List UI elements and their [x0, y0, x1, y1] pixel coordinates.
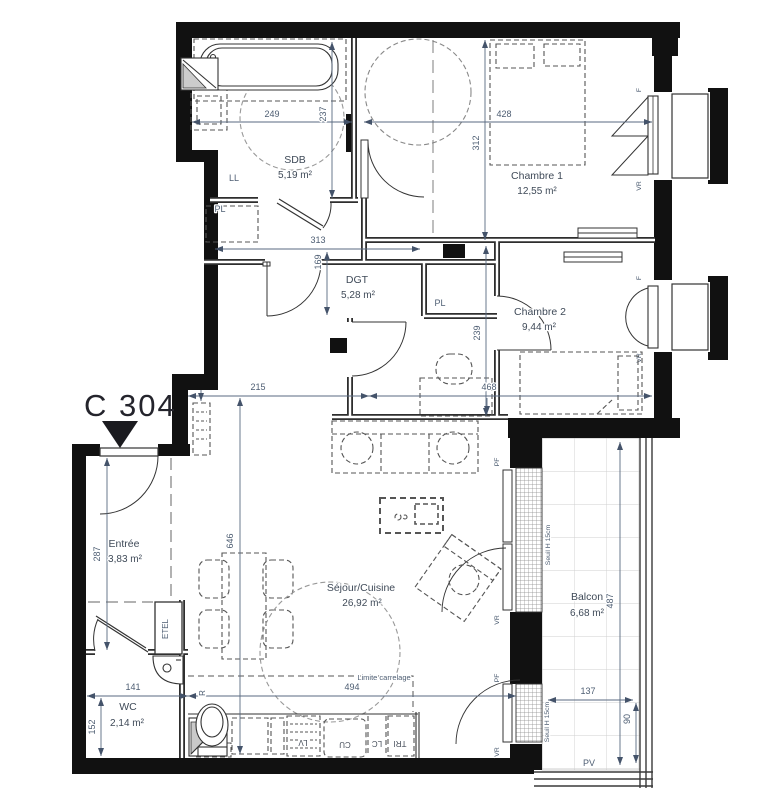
dim-468: 468 [481, 382, 496, 392]
svg-text:9,44 m²: 9,44 m² [522, 322, 557, 333]
room-label-wc: WC 2,14 m² [110, 701, 145, 729]
svg-text:2,14 m²: 2,14 m² [110, 718, 145, 729]
dim-90: 90 [622, 714, 632, 724]
radiator-entree [193, 403, 210, 455]
dim-237: 237 [318, 106, 328, 121]
balcony-label-vr: VR [494, 747, 501, 757]
svg-text:Chambre 1: Chambre 1 [511, 170, 563, 182]
sorting-bin [388, 716, 414, 756]
svg-text:5,19 m²: 5,19 m² [278, 170, 313, 181]
entrance-door-swing [100, 456, 158, 514]
label-r: R [198, 690, 207, 696]
sofa [332, 421, 478, 473]
sejour-door-swing [352, 322, 406, 376]
svg-text:Balcon: Balcon [571, 591, 603, 603]
dim-428: 428 [496, 109, 511, 119]
pillow [544, 44, 580, 66]
svg-text:Chambre 2: Chambre 2 [514, 306, 566, 318]
floor-plan-page: F VR F VR PF VR PF VR Seuil H 15cm Seuil… [0, 0, 768, 800]
svg-text:26,92 m²: 26,92 m² [342, 598, 382, 609]
entrance-door-leaf [100, 448, 158, 456]
window-label-f: F [636, 276, 643, 280]
window-chambre2: F VR [626, 276, 710, 363]
toilet [196, 704, 228, 756]
dim-141: 141 [125, 682, 140, 692]
pillow [618, 356, 638, 410]
radiator [564, 228, 637, 262]
threshold-label: Seuil H 15cm [544, 701, 551, 742]
dim-249: 249 [264, 109, 279, 119]
dim-287: 287 [92, 546, 102, 561]
label-pl: PL [434, 298, 445, 308]
svg-text:5,28 m²: 5,28 m² [341, 290, 376, 301]
sdb-door-swing [323, 202, 331, 228]
balcony-glazing: PF VR PF VR Seuil H 15cm Seuil H 15cm [442, 458, 552, 757]
dishwasher [287, 716, 320, 756]
pillow [496, 44, 534, 68]
sofa-cushion [341, 432, 373, 464]
wc-washbasin [153, 656, 183, 684]
duct-block [443, 244, 465, 258]
svg-text:Séjour/Cuisine: Séjour/Cuisine [327, 582, 395, 594]
label-pv: PV [583, 758, 595, 768]
room-label-sejour: Séjour/Cuisine 26,92 m² [327, 582, 395, 609]
balcony-door-swing [442, 548, 506, 612]
bed-ch1 [490, 40, 585, 165]
chair [199, 610, 229, 648]
dim-137: 137 [580, 686, 595, 696]
armchair [415, 535, 501, 622]
label-tri: TRI [394, 739, 407, 748]
unit-title: C 304 [84, 388, 177, 448]
dim-215: 215 [250, 382, 265, 392]
dim-239: 239 [472, 325, 482, 340]
duct-block [330, 338, 347, 353]
label-lc: LC [372, 739, 382, 748]
label-etel: ETEL [161, 618, 170, 639]
svg-text:SDB: SDB [284, 154, 306, 166]
entrance-arrow-icon [102, 421, 138, 448]
chambre1-door-swing [368, 142, 424, 197]
balcony-label-vr: VR [494, 615, 501, 625]
dim-152: 152 [87, 719, 97, 734]
kitchen-unit [232, 718, 268, 754]
cooktop [324, 719, 366, 757]
bed-ch2 [520, 352, 642, 414]
dim-312: 312 [471, 135, 481, 150]
dim-487: 487 [605, 593, 615, 608]
unit-number: C 304 [84, 388, 177, 423]
coffee-table-tray [415, 504, 438, 524]
svg-text:DGT: DGT [346, 274, 369, 286]
label-ll: LL [229, 173, 239, 183]
svg-text:12,55 m²: 12,55 m² [517, 186, 557, 197]
room-label-chambre2: Chambre 2 9,44 m² [514, 306, 566, 333]
chair [199, 560, 229, 598]
chair [263, 610, 293, 648]
chair [263, 560, 293, 598]
kitchen-unit [271, 718, 284, 754]
svg-text:3,83 m²: 3,83 m² [108, 554, 143, 565]
svg-text:WC: WC [119, 701, 137, 713]
dim-313: 313 [310, 235, 325, 245]
balcony-label-pf: PF [494, 458, 501, 467]
room-label-chambre1: Chambre 1 12,55 m² [511, 170, 563, 197]
sofa-cushion [437, 432, 469, 464]
dim-169: 169 [313, 254, 323, 269]
sdb-washbasin [181, 58, 218, 90]
floor-plan: F VR F VR PF VR PF VR Seuil H 15cm Seuil… [0, 0, 768, 800]
window-chambre1: F VR [612, 88, 710, 191]
dim-494: 494 [344, 682, 359, 692]
chambre1-door-leaf [361, 140, 368, 198]
threshold-label: Seuil H 15cm [545, 524, 552, 565]
label-pl: PL [214, 204, 225, 214]
label-limite-carrelage: Limite carrelage [357, 673, 410, 682]
label-lv: LV [298, 738, 308, 747]
bathtub [200, 44, 338, 90]
label-cu: CU [339, 740, 351, 749]
room-label-entree: Entrée 3,83 m² [108, 538, 143, 565]
svg-text:6,68 m²: 6,68 m² [570, 608, 605, 619]
window-label-f: F [636, 88, 643, 92]
balcony-label-pf: PF [494, 674, 501, 683]
dim-646: 646 [225, 533, 235, 548]
svg-text:Entrée: Entrée [109, 538, 140, 550]
room-label-dgt: DGT 5,28 m² [341, 274, 376, 301]
window-label-vr: VR [636, 181, 643, 191]
desk-chair [436, 354, 472, 384]
turning-circle-ch1 [365, 39, 471, 145]
wc-door-swing [94, 619, 98, 651]
